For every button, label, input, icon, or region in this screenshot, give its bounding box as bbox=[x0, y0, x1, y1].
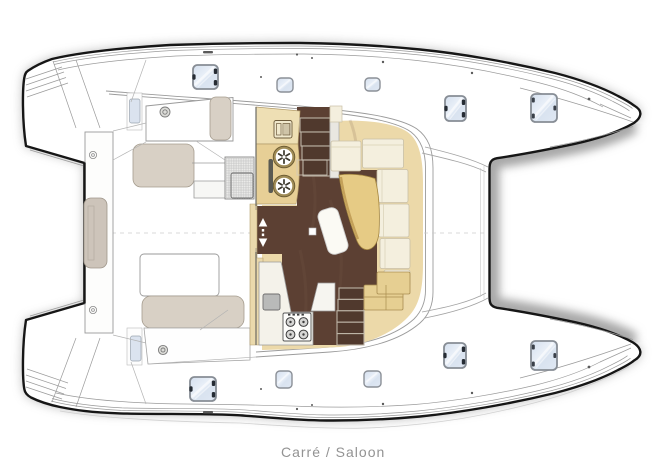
svg-text:Carré / Saloon: Carré / Saloon bbox=[281, 444, 385, 460]
